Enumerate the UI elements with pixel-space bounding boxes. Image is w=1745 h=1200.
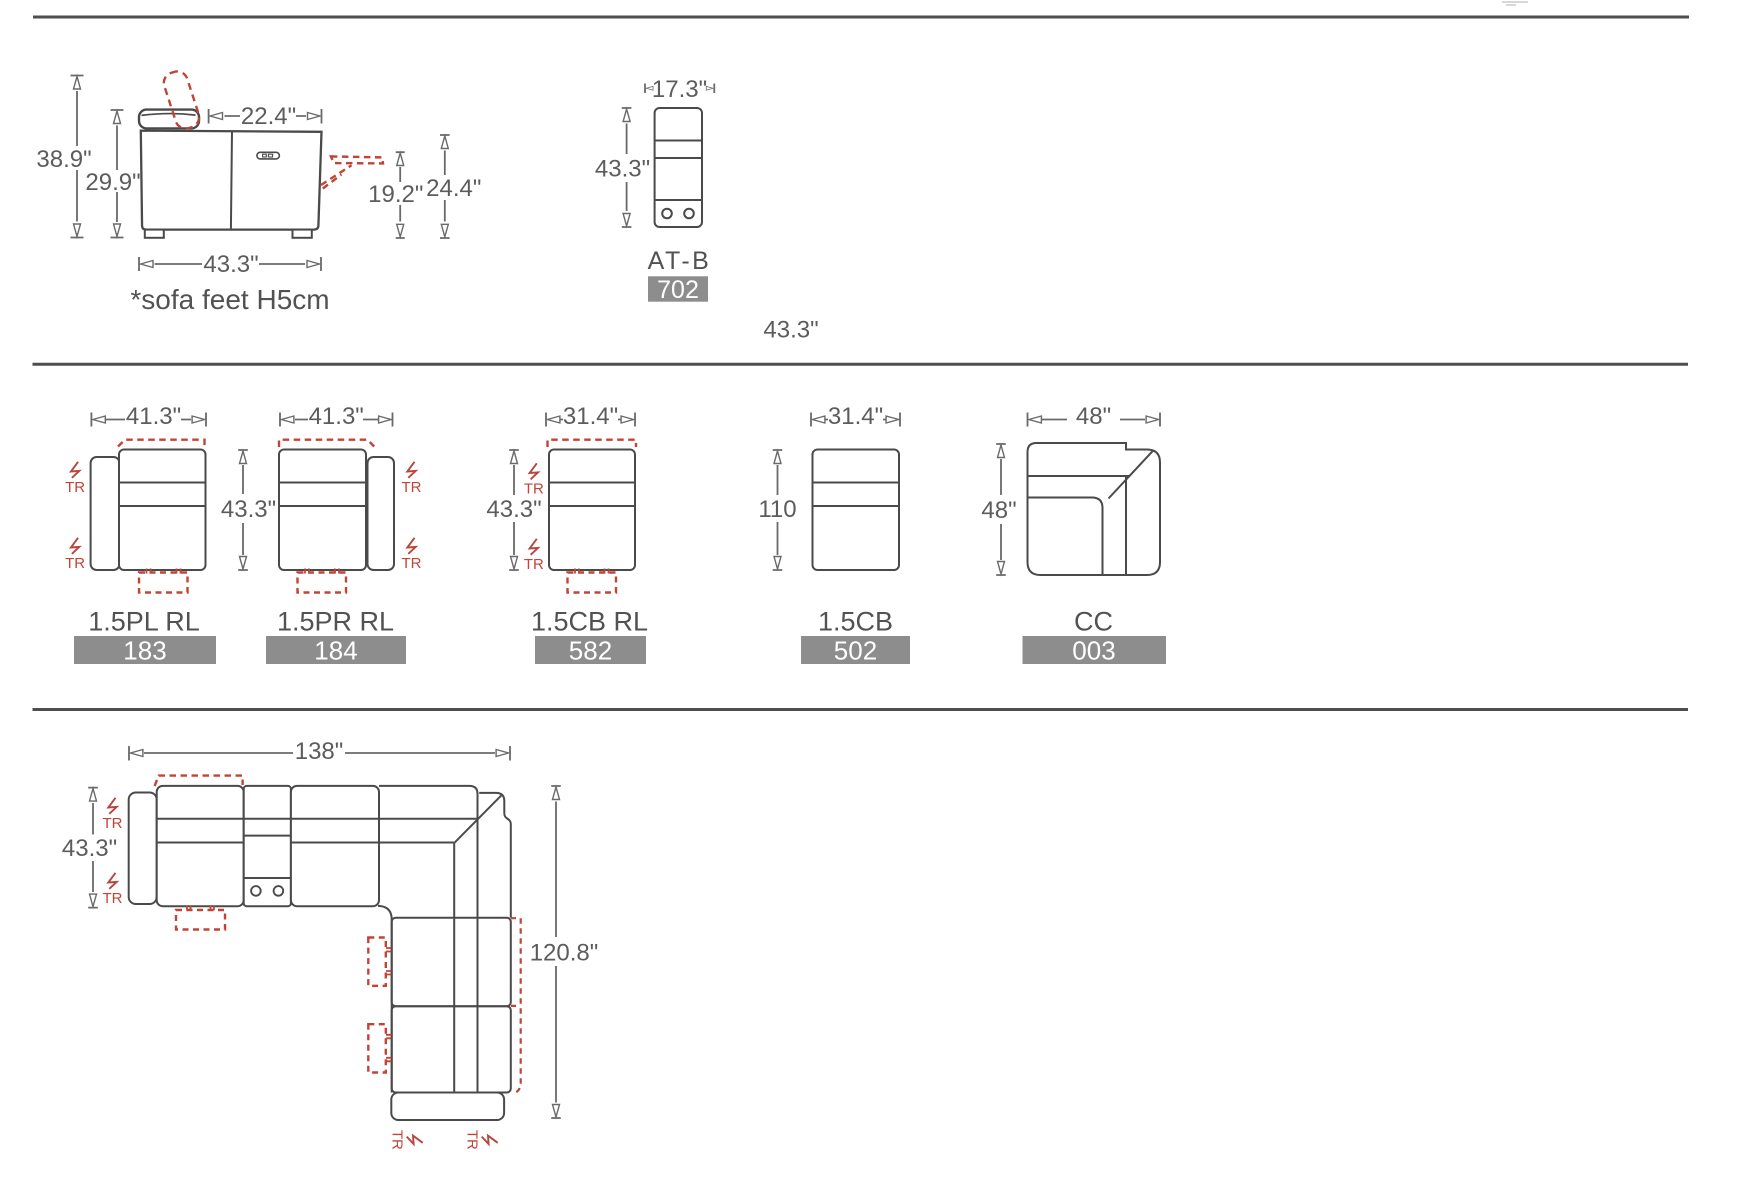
svg-text:41.3": 41.3" bbox=[309, 403, 364, 430]
svg-text:120.8": 120.8" bbox=[530, 940, 599, 967]
svg-text:1.5PL RL: 1.5PL RL bbox=[88, 607, 200, 637]
svg-text:702: 702 bbox=[657, 276, 699, 304]
svg-text:502: 502 bbox=[834, 636, 877, 666]
svg-text:*sofa feet H5cm: *sofa feet H5cm bbox=[130, 284, 329, 315]
svg-text:110: 110 bbox=[758, 496, 796, 523]
svg-text:003: 003 bbox=[1072, 636, 1115, 666]
svg-text:183: 183 bbox=[123, 636, 166, 666]
svg-text:43.3": 43.3" bbox=[62, 835, 117, 862]
svg-text:138": 138" bbox=[295, 738, 344, 765]
svg-text:43.3": 43.3" bbox=[486, 496, 541, 523]
svg-text:1.5CB: 1.5CB bbox=[818, 607, 893, 637]
svg-text:29.9": 29.9" bbox=[85, 169, 140, 196]
svg-text:31.4": 31.4" bbox=[563, 403, 618, 430]
svg-text:1.5CB RL: 1.5CB RL bbox=[531, 607, 648, 637]
svg-text:AT-B: AT-B bbox=[648, 247, 712, 275]
svg-text:31.4": 31.4" bbox=[828, 403, 883, 430]
svg-text:17.3": 17.3" bbox=[652, 76, 707, 103]
svg-text:22.4": 22.4" bbox=[241, 103, 296, 130]
svg-text:43.3": 43.3" bbox=[221, 496, 276, 523]
svg-text:43.3": 43.3" bbox=[595, 156, 650, 183]
svg-text:24.4": 24.4" bbox=[426, 175, 481, 202]
svg-text:184: 184 bbox=[314, 636, 357, 666]
svg-text:48": 48" bbox=[981, 497, 1016, 524]
svg-text:43.3": 43.3" bbox=[763, 317, 818, 344]
svg-text:CC: CC bbox=[1074, 607, 1113, 637]
svg-text:19.2": 19.2" bbox=[368, 181, 423, 208]
svg-text:41.3": 41.3" bbox=[126, 403, 181, 430]
svg-text:48": 48" bbox=[1076, 403, 1111, 430]
svg-text:38.9": 38.9" bbox=[36, 146, 91, 173]
svg-text:1.5PR RL: 1.5PR RL bbox=[277, 607, 394, 637]
svg-text:43.3": 43.3" bbox=[203, 251, 258, 278]
svg-text:582: 582 bbox=[569, 636, 612, 666]
